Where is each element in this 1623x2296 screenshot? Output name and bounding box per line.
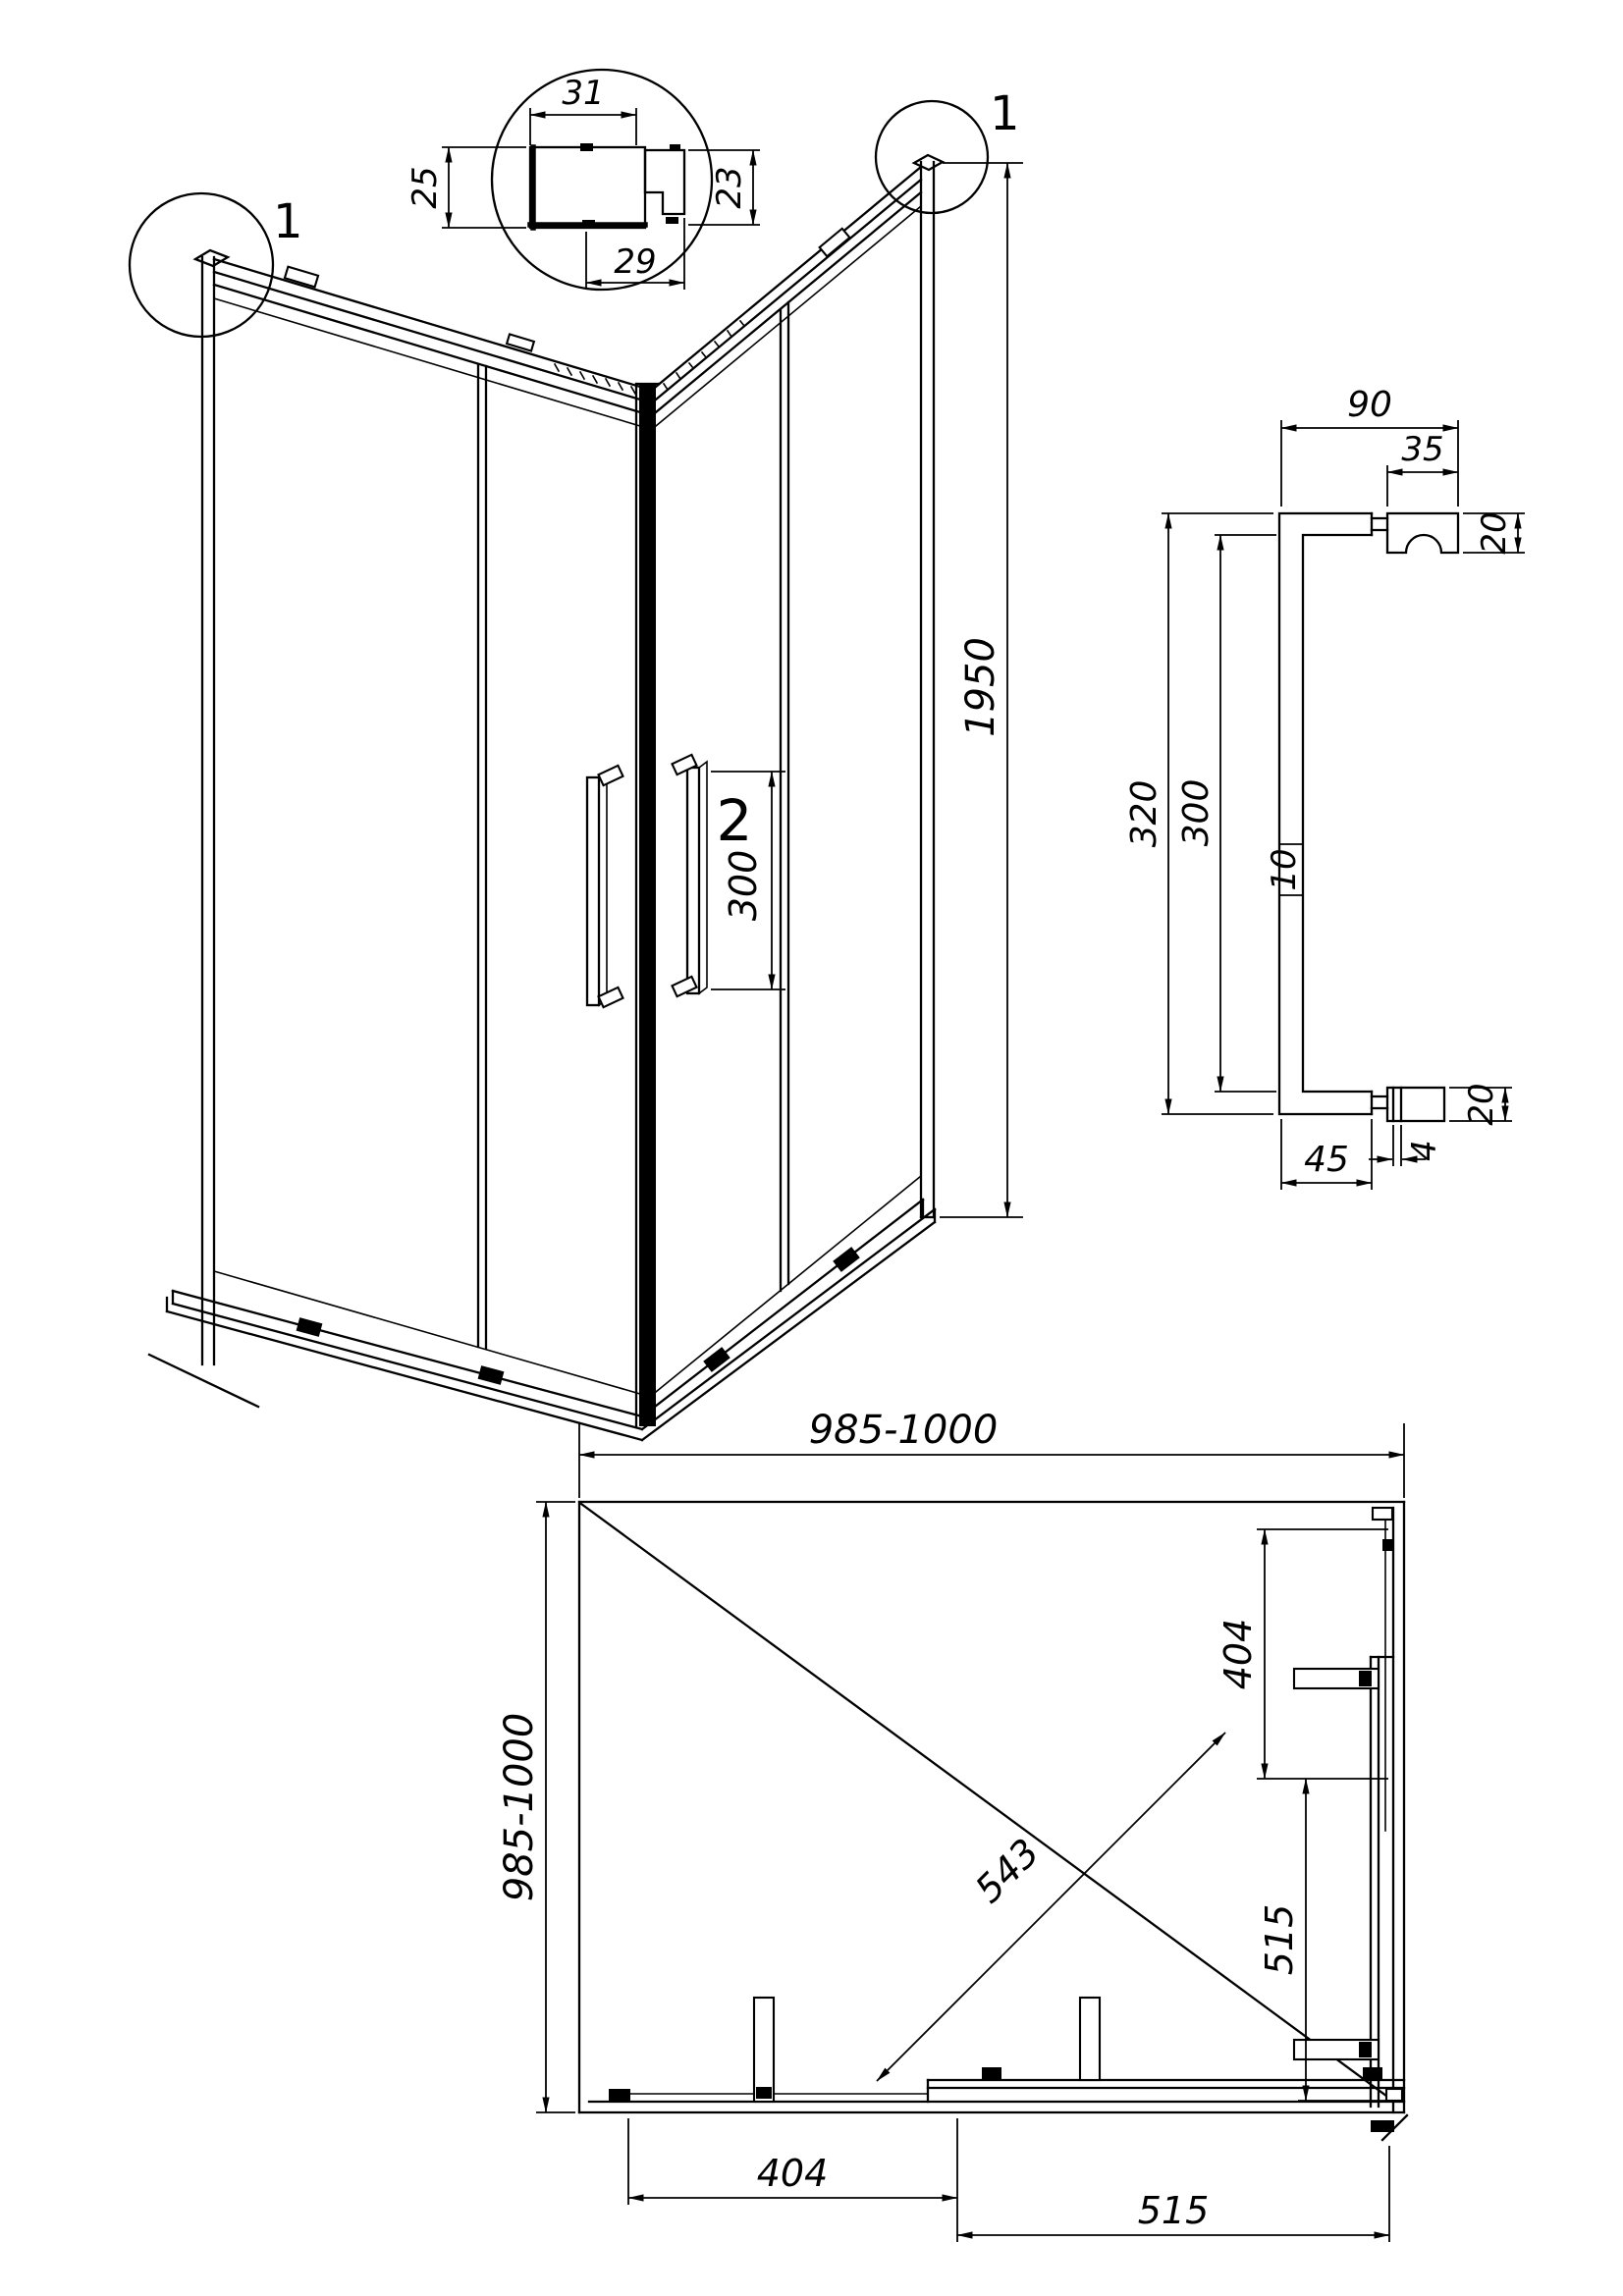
plan-view: 985-1000 985-1000 404 515 404 515 543 (497, 1408, 1407, 2242)
dim-profile-top: 31 (562, 74, 604, 113)
left-wall-post (149, 250, 258, 1407)
dim-height: 1950 (958, 637, 1003, 737)
detail-circle-right: 1 (876, 86, 1020, 213)
dim-handle-inner-height: 300 (1176, 779, 1217, 847)
dim-plan-width: 985-1000 (809, 1408, 999, 1453)
dim-handle-bottom-width: 45 (1304, 1140, 1349, 1180)
bottom-rails (167, 1176, 935, 1440)
technical-drawing-page: 2 300 1 1 1950 (0, 0, 1623, 2296)
dim-handle-pad-width: 35 (1401, 430, 1443, 469)
front-perspective-view: 2 300 1 1 1950 (130, 86, 1023, 1440)
handle-span-dimension: 2 300 (711, 772, 785, 989)
dim-plan-diagonal: 543 (967, 1831, 1048, 1911)
corner-post (636, 384, 659, 1426)
dim-plan-depth: 985-1000 (497, 1713, 542, 1902)
dim-plan-bottom-door: 515 (1138, 2189, 1210, 2232)
dim-plan-side-door: 515 (1258, 1904, 1301, 1976)
detail-label-handle: 2 (717, 787, 753, 854)
door-handle-left (587, 766, 623, 1007)
dim-profile-bottom: 29 (614, 242, 656, 282)
dim-profile-left: 25 (406, 166, 445, 208)
profile-section-detail: 31 25 29 23 (406, 70, 760, 290)
dim-profile-right: 23 (710, 166, 749, 208)
top-rails (214, 167, 921, 426)
handle-detail-view: 90 35 20 320 300 10 45 4 (1124, 385, 1525, 1190)
dim-plan-bottom-fixed: 404 (757, 2152, 829, 2195)
height-dimension: 1950 (940, 163, 1023, 1217)
dim-handle-pad-top-thickness: 20 (1475, 511, 1514, 554)
dim-handle-bar-thickness: 10 (1265, 848, 1304, 890)
dim-handle-top-width: 90 (1347, 385, 1392, 425)
dim-handle-overall-height: 320 (1124, 780, 1164, 848)
dim-handle-span: 300 (722, 850, 765, 922)
right-wall-post (914, 155, 943, 1217)
detail-label-right: 1 (990, 86, 1020, 141)
dim-plan-side-fixed: 404 (1217, 1619, 1260, 1690)
dim-handle-pad-bottom-thickness: 20 (1462, 1083, 1501, 1125)
detail-label-left: 1 (273, 194, 303, 249)
door-handle-right (672, 755, 707, 996)
dim-handle-glass-gap: 4 (1405, 1140, 1444, 1161)
